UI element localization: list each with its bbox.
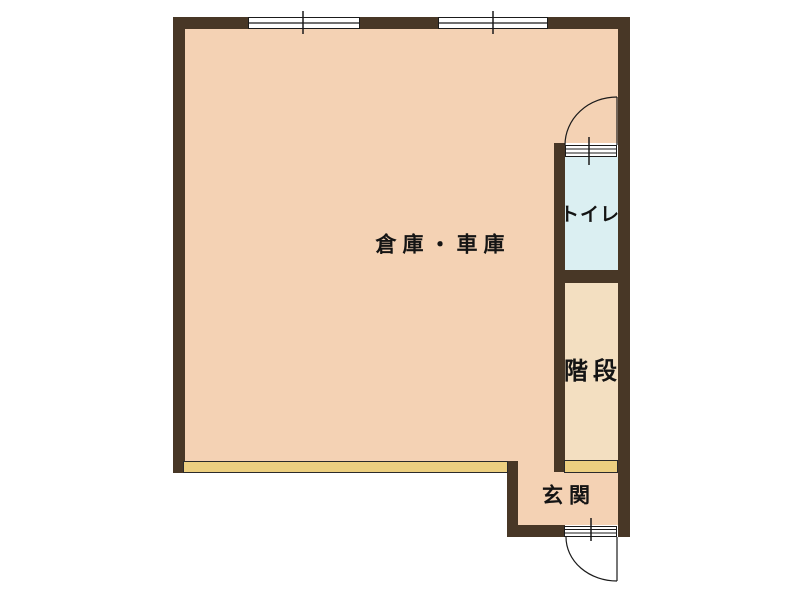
entrance-step-icon (564, 460, 618, 473)
wall-right (618, 17, 630, 537)
wall-toilet-stairs-left (554, 143, 565, 472)
garage-shutter-icon (183, 461, 508, 473)
wall-left (173, 17, 185, 473)
label-stairs: 階段 (564, 359, 622, 383)
wall-entrance-bottom (507, 525, 565, 537)
room-warehouse-garage (185, 143, 554, 461)
window-icon-right (438, 17, 548, 29)
entrance-door-icon (564, 526, 617, 537)
label-toilet: トイレ (560, 206, 620, 225)
room-warehouse-garage-alcove (185, 29, 618, 143)
label-warehouse-garage: 倉庫・車庫 (376, 235, 511, 256)
window-icon-left (248, 17, 360, 29)
floor-plan: 倉庫・車庫 トイレ 階段 玄関 (0, 0, 800, 600)
label-entrance: 玄関 (542, 486, 596, 507)
toilet-door-icon (565, 145, 617, 157)
entrance-door-swing-arc-icon (566, 537, 617, 581)
wall-toilet-stairs-divider (554, 270, 618, 283)
wall-top (173, 17, 630, 29)
